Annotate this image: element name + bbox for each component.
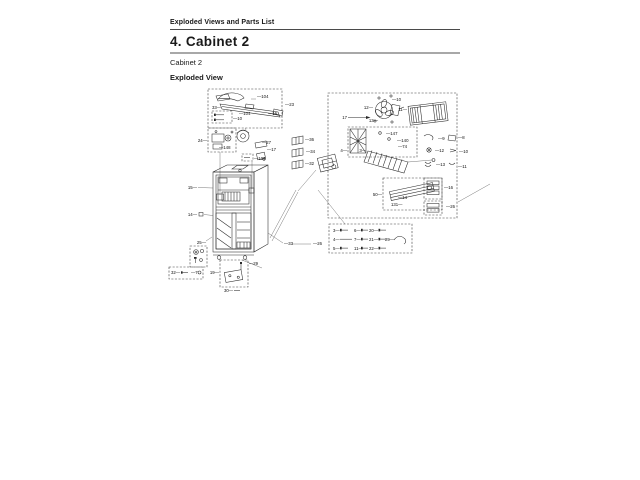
part-callout-25: 25— — [197, 240, 207, 245]
part-callout-140: —140 — [397, 138, 409, 143]
part-callout-34: —34 — [306, 149, 316, 154]
fin-bundle — [364, 151, 435, 174]
part-callout-10: —10 — [392, 97, 402, 102]
part-callout-7: 7— — [354, 237, 361, 242]
part-callout-24: 24— — [198, 138, 208, 143]
part-callout-29: 29— — [385, 237, 395, 242]
part-callout-5: 5— — [333, 246, 340, 251]
part-callout-14: 14— — [188, 212, 198, 217]
fan-motor-box — [208, 128, 236, 195]
leveling-leg-box — [190, 246, 207, 267]
hinge-box — [220, 260, 248, 291]
part-callout-3: 3— — [333, 228, 340, 233]
part-callout-131: 131— — [391, 202, 403, 207]
part-callout-11: 11— — [354, 246, 363, 251]
part-callout-36: —36 — [305, 137, 315, 142]
cabinet-body — [213, 165, 268, 259]
part-callout-9: —9 — [438, 136, 445, 141]
part-callout-12: —12 — [435, 148, 445, 153]
part-callout-19: 19— — [210, 270, 220, 275]
part-callout-10: —10 — [233, 116, 243, 121]
part-callout-33: —33 — [284, 241, 294, 246]
part-callout-10: —10 — [459, 149, 469, 154]
part-callout-4: 4— — [340, 148, 347, 153]
part-callout-14: —14 — [398, 195, 408, 200]
part-callout-6: 6— — [354, 228, 361, 233]
part-callout-13: 13— — [369, 118, 379, 123]
part-callout-22: 22— — [369, 246, 379, 251]
part-callout-74: —74 — [398, 144, 408, 149]
part-callout-13: —13 — [436, 162, 446, 167]
part-callout-16: —16 — [268, 111, 278, 116]
part-callout-21: 21— — [369, 237, 379, 242]
part-callout-147: —147 — [386, 131, 398, 136]
part-callout-32: —32 — [305, 161, 315, 166]
exploded-view-diagram: 33——104—23—104—16—1024——148—27—17—10415—… — [0, 0, 640, 480]
part-callout-104: —104 — [257, 94, 269, 99]
part-callout-32: 32— — [171, 270, 181, 275]
part-callout-27: —27 — [262, 140, 272, 145]
part-callout-11: 11— — [398, 107, 407, 112]
part-callout-7: —7 — [191, 270, 198, 275]
part-callout-26: —26 — [313, 241, 323, 246]
fan-shroud — [237, 128, 249, 142]
part-callout-29: —29 — [249, 261, 259, 266]
part-callout-11: —11 — [458, 164, 467, 169]
manual-page: { "page": { "breadcrumb": "Exploded View… — [0, 0, 640, 480]
evap-cover-grille — [408, 102, 448, 125]
part-callout-30: 30— — [224, 288, 234, 293]
damper-cover-plates — [292, 136, 303, 169]
evaporator-section-box — [328, 93, 457, 218]
part-callout-33: 33— — [212, 105, 222, 110]
part-callout-16: —16 — [444, 185, 454, 190]
part-callout-148: —148 — [219, 145, 231, 150]
part-callout-3: 3— — [359, 148, 366, 153]
part-callout-8: —8 — [458, 135, 465, 140]
part-callout-50: 50— — [373, 192, 383, 197]
part-callout-12: 12— — [364, 105, 374, 110]
hardware-column — [424, 135, 456, 216]
part-callout-17: —17 — [267, 147, 277, 152]
part-callout-4: 4— — [333, 237, 340, 242]
part-callout-15: 15— — [188, 185, 198, 190]
part-callout-23: —23 — [285, 102, 295, 107]
part-callout-20: 20— — [369, 228, 379, 233]
part-callout-26: —26 — [446, 204, 456, 209]
part-callout-17: 17 — [342, 115, 347, 120]
part-callout-104: —104 — [254, 156, 266, 161]
